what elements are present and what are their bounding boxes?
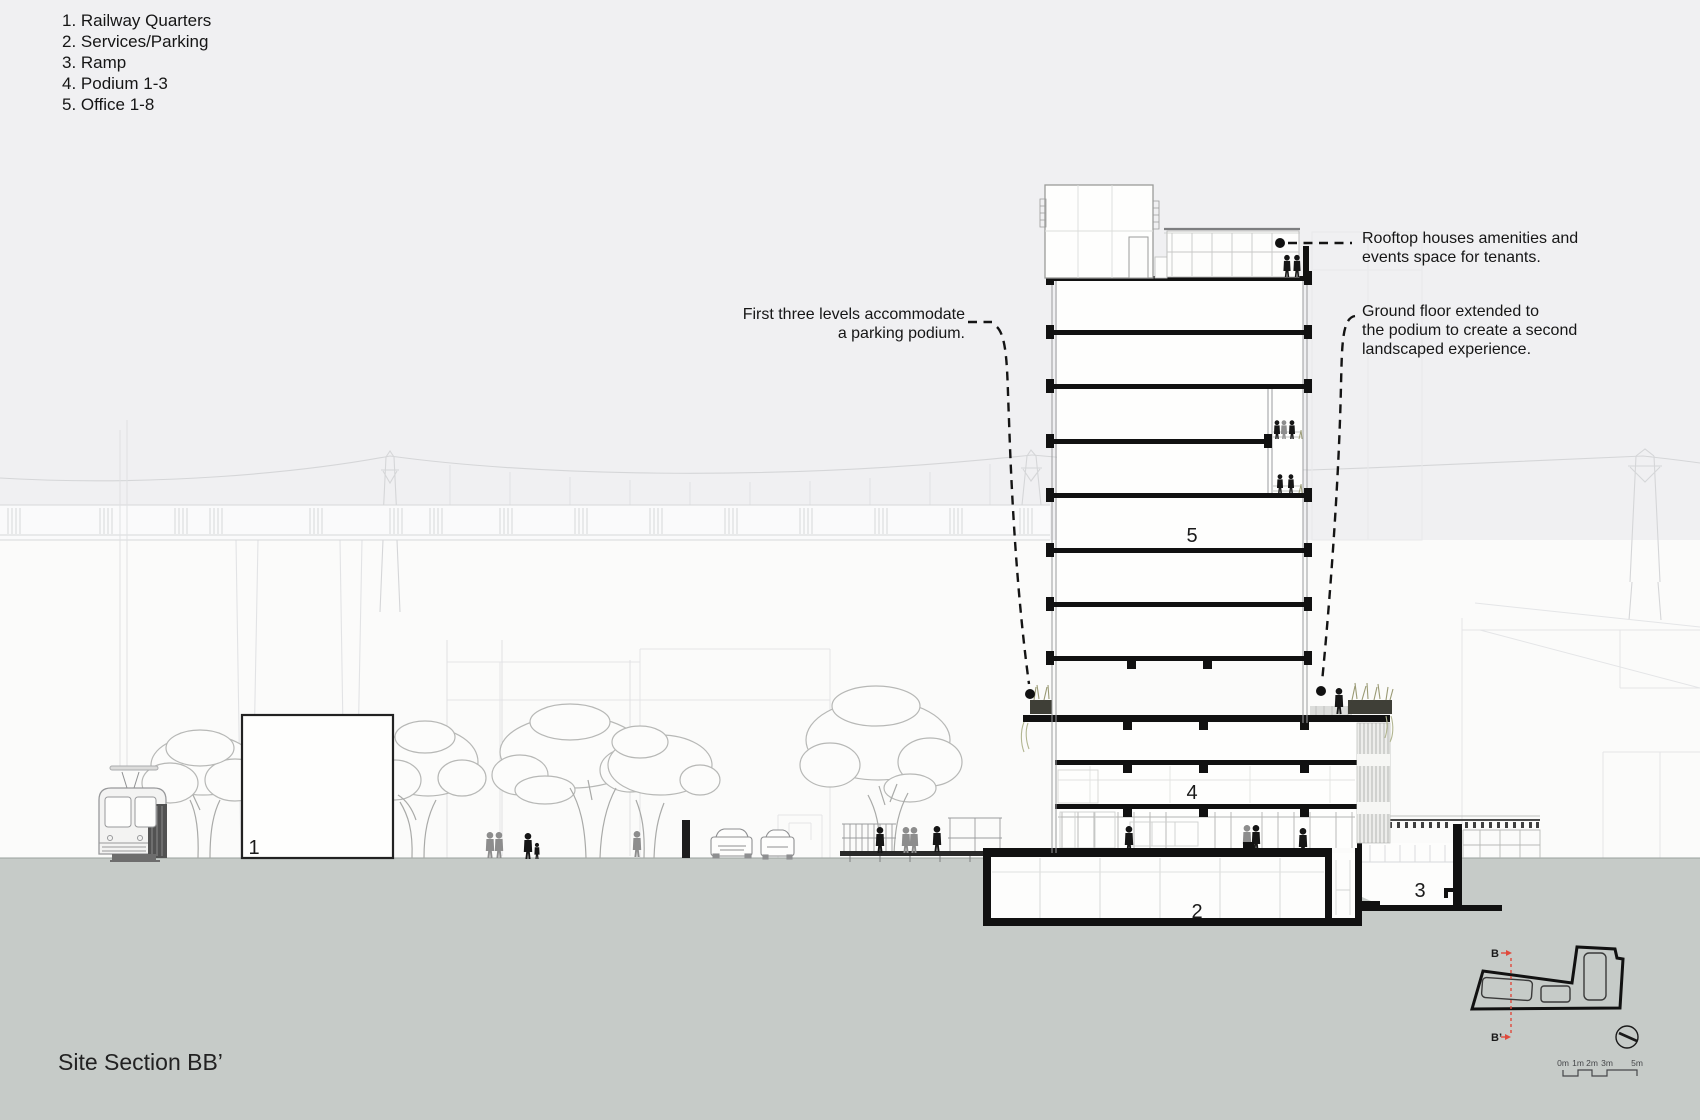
scale-label-5m: 5m bbox=[1631, 1058, 1643, 1068]
legend-item: 4. Podium 1-3 bbox=[62, 73, 211, 94]
legend-item: 1. Railway Quarters bbox=[62, 10, 211, 31]
annotation-line: Ground floor extended to bbox=[1362, 302, 1577, 321]
site-section-sheet: 1 2 3 4 5 B B’ 0m 1 bbox=[0, 0, 1700, 1120]
annotation-parking-podium: First three levels accommodate a parking… bbox=[743, 305, 965, 343]
label-railway-quarters: 1 bbox=[248, 837, 259, 859]
drawing-title: Site Section BB’ bbox=[58, 1049, 223, 1077]
annotation-line: First three levels accommodate bbox=[743, 305, 965, 324]
planter bbox=[1030, 700, 1052, 714]
annotation-ground-floor: Ground floor extended to the podium to c… bbox=[1362, 302, 1577, 359]
label-office: 5 bbox=[1186, 525, 1197, 547]
annotation-line: a parking podium. bbox=[743, 324, 965, 343]
annotation-line: events space for tenants. bbox=[1362, 248, 1578, 267]
key-plan-marker-b: B bbox=[1491, 948, 1499, 960]
annotation-rooftop: Rooftop houses amenities and events spac… bbox=[1362, 229, 1578, 267]
key-plan-marker-b-prime: B’ bbox=[1491, 1032, 1502, 1044]
legend: 1. Railway Quarters 2. Services/Parking … bbox=[62, 10, 211, 115]
railway-quarters-building bbox=[242, 715, 393, 858]
leader-dot bbox=[1275, 238, 1285, 248]
green-wall-louver bbox=[1357, 723, 1390, 843]
leader-dot bbox=[1316, 686, 1326, 696]
scale-label-2m: 2m bbox=[1586, 1058, 1598, 1068]
sky-band bbox=[0, 0, 1700, 540]
scale-label-1m: 1m bbox=[1572, 1058, 1584, 1068]
planter bbox=[1348, 700, 1392, 714]
annotation-line: the podium to create a second bbox=[1362, 321, 1577, 340]
label-ramp: 3 bbox=[1414, 880, 1425, 902]
scale-label-0m: 0m bbox=[1557, 1058, 1569, 1068]
annotation-line: Rooftop houses amenities and bbox=[1362, 229, 1578, 248]
bridge-deck bbox=[0, 505, 1050, 540]
annotation-line: landscaped experience. bbox=[1362, 340, 1577, 359]
legend-item: 5. Office 1-8 bbox=[62, 94, 211, 115]
section-drawing: 1 2 3 4 5 B B’ 0m 1 bbox=[0, 0, 1700, 1120]
label-services-parking: 2 bbox=[1191, 901, 1202, 923]
legend-item: 3. Ramp bbox=[62, 52, 211, 73]
label-podium: 4 bbox=[1186, 782, 1197, 804]
legend-item: 2. Services/Parking bbox=[62, 31, 211, 52]
leader-dot bbox=[1025, 689, 1035, 699]
bollard bbox=[682, 820, 690, 858]
scale-label-3m: 3m bbox=[1601, 1058, 1613, 1068]
